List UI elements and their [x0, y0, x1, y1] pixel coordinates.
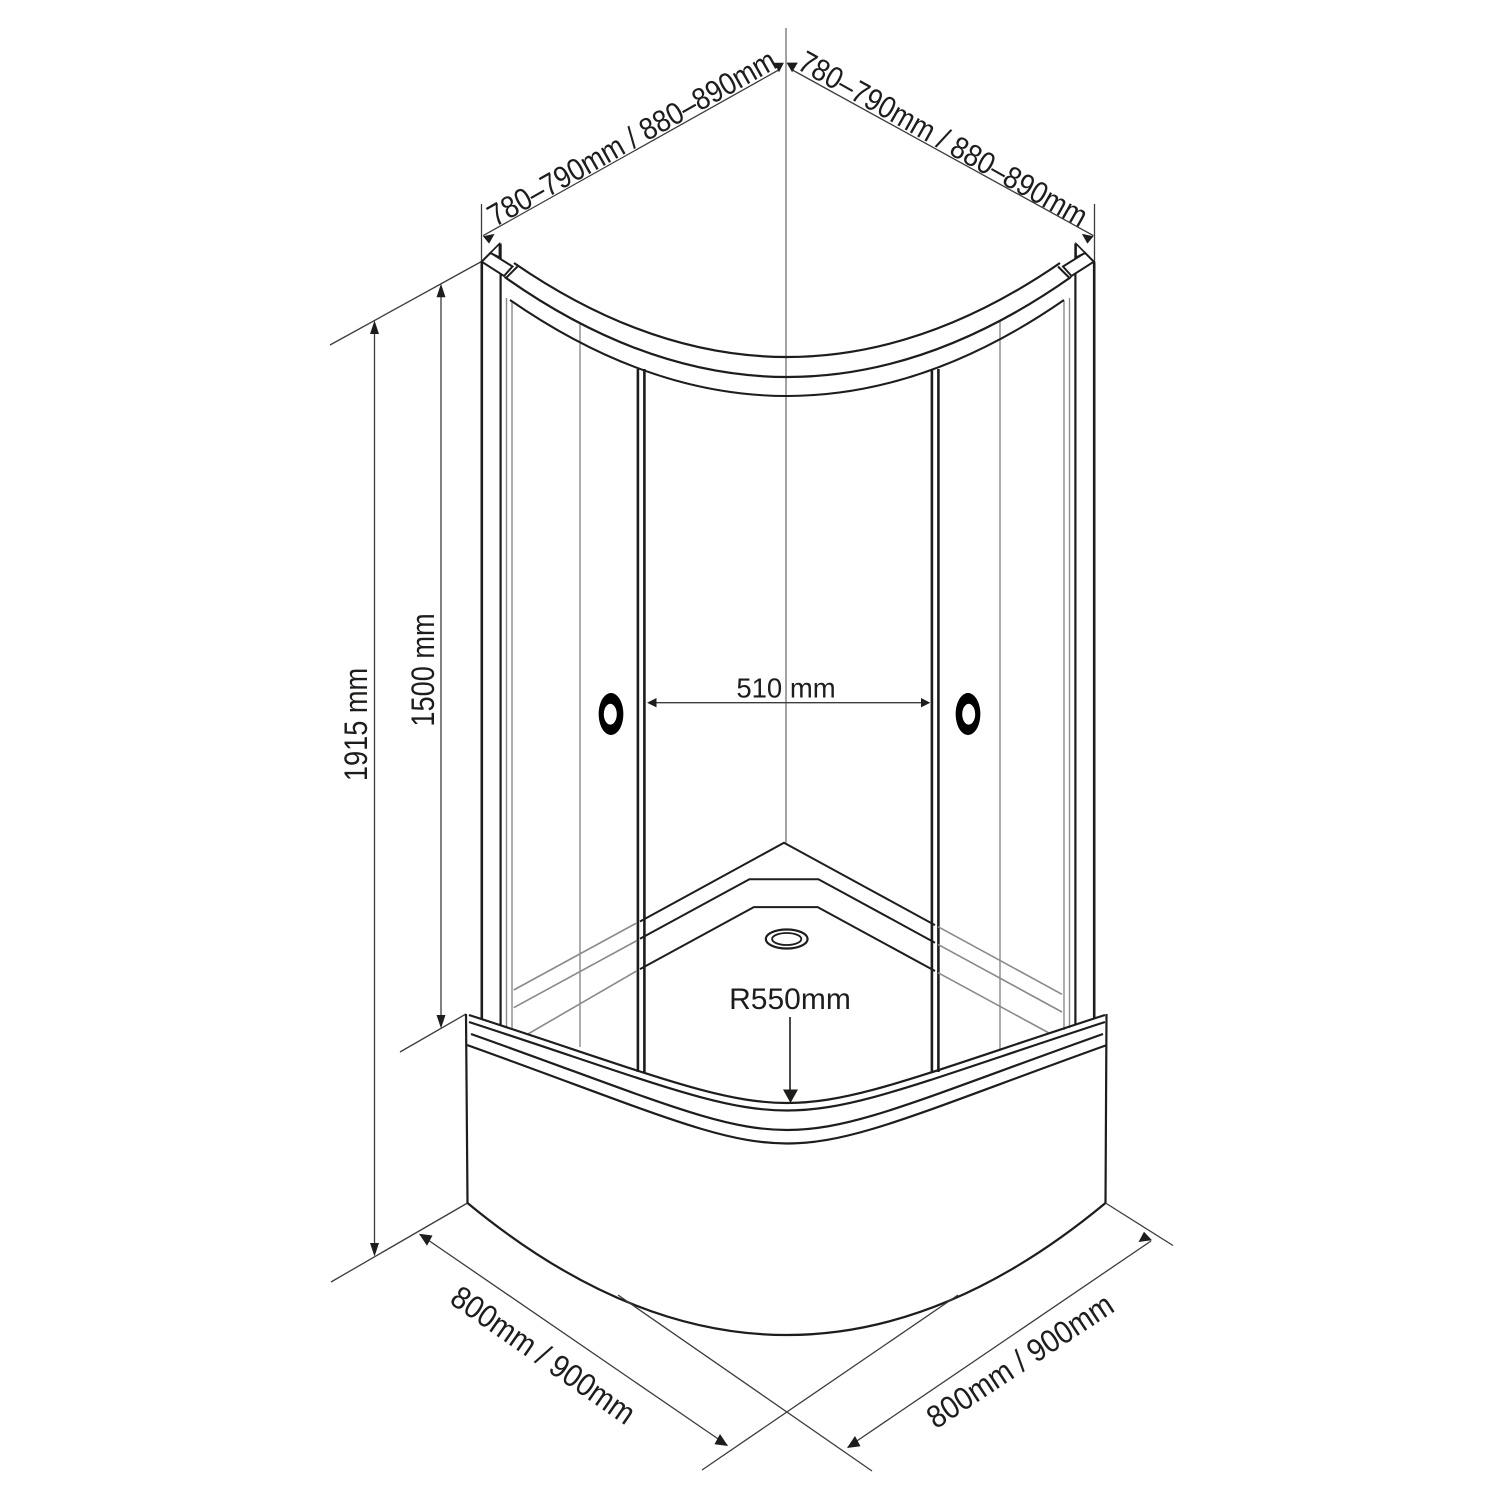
svg-text:1500 mm: 1500 mm: [406, 613, 442, 726]
svg-text:510 mm: 510 mm: [736, 673, 835, 704]
svg-text:1915 mm: 1915 mm: [339, 668, 375, 781]
svg-text:R550mm: R550mm: [729, 983, 851, 1016]
